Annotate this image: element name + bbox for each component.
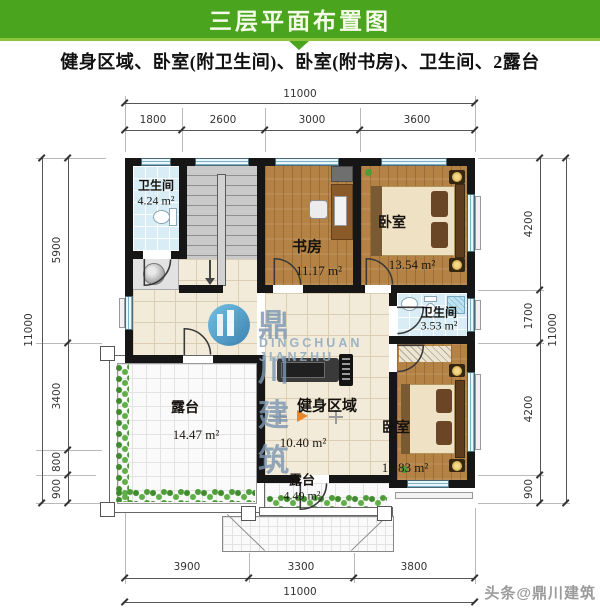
dim-label: 900	[523, 467, 537, 511]
pillow	[436, 421, 452, 445]
treadmill-console-lines	[342, 358, 350, 382]
dim-label-top-total: 11000	[270, 88, 330, 100]
wall	[303, 285, 365, 293]
toilet-icon	[153, 210, 170, 224]
dim-label: 4200	[523, 387, 537, 431]
wall	[391, 285, 475, 293]
dimension-line	[566, 158, 567, 503]
window-sill	[475, 300, 481, 330]
room-label: 卫生间	[138, 177, 174, 194]
window	[195, 158, 249, 166]
title-bar: 三层平面布置图	[0, 0, 600, 41]
window	[381, 158, 447, 166]
terrace-post	[100, 502, 115, 517]
wall	[257, 285, 273, 293]
door-arc	[143, 259, 171, 287]
dim-label: 3900	[157, 561, 217, 573]
room-area-label: 4.24 m²	[138, 194, 175, 209]
pillow	[436, 389, 452, 413]
dim-label-left-total: 11000	[23, 308, 37, 352]
room-label: 卧室	[378, 212, 406, 232]
wall	[449, 480, 475, 488]
room-area-label: 15.83 m²	[382, 460, 429, 476]
dim-label: 3600	[387, 114, 447, 126]
dim-label-bottom-total: 11000	[270, 586, 330, 598]
lamp-icon	[452, 172, 462, 182]
window-sill	[395, 492, 473, 499]
extension-line	[36, 158, 106, 159]
window	[467, 194, 475, 252]
pillow	[431, 222, 448, 248]
wall	[179, 158, 187, 259]
wall	[389, 480, 407, 488]
window-sill	[475, 196, 481, 250]
stair-arrow-head-icon	[205, 278, 215, 285]
dim-label-right-total: 11000	[547, 308, 561, 352]
terrace-1-plants-bottom	[116, 489, 255, 502]
dim-label: 900	[51, 467, 65, 511]
dimension-line	[125, 602, 475, 603]
window-sill	[475, 374, 481, 450]
dim-label: 3400	[51, 374, 65, 418]
bed-headboard	[455, 380, 465, 458]
dimension-line	[540, 158, 541, 503]
chair	[309, 200, 328, 219]
window	[467, 298, 475, 332]
window	[125, 296, 133, 330]
room-label: 卧室	[382, 417, 410, 437]
dim-label: 3800	[384, 561, 444, 573]
terrace-post	[241, 506, 256, 521]
window	[407, 480, 449, 488]
toilet-icon	[424, 296, 437, 302]
stair-rail	[217, 174, 226, 286]
wall	[179, 285, 223, 293]
bed-headboard	[455, 184, 465, 258]
door-arc	[183, 327, 211, 355]
wall	[171, 251, 187, 259]
dim-label: 5900	[51, 228, 65, 272]
terrace-post	[377, 506, 392, 521]
extension-line	[36, 343, 102, 344]
wall	[125, 158, 133, 363]
window	[141, 158, 171, 166]
room-area-label: 13.54 m²	[389, 257, 436, 273]
dimension-line	[42, 158, 43, 503]
exercise-equipment-icon	[279, 410, 281, 424]
door-arc	[397, 344, 425, 372]
page-title: 三层平面布置图	[209, 2, 391, 36]
room-area-label: 11.17 m²	[296, 263, 342, 279]
wall	[389, 293, 397, 306]
room-label: 书房	[292, 236, 322, 257]
printer-cabinet	[331, 166, 353, 182]
monitor-icon	[334, 196, 347, 226]
dim-label: 4200	[523, 202, 537, 246]
dim-label: 3300	[271, 561, 331, 573]
extension-line	[478, 158, 570, 159]
watermark-credit: 头条@鼎川建筑	[446, 582, 596, 603]
room-area-label: 14.47 m²	[173, 427, 220, 443]
terrace-1-plants-left	[116, 364, 129, 502]
wall	[353, 158, 361, 285]
floor-plan-page: 三层平面布置图 健身区域、卧室(附卫生间)、卧室(附书房)、卫生间、2露台 11…	[0, 0, 600, 613]
dim-label: 1800	[123, 114, 183, 126]
extension-line	[36, 503, 106, 504]
wall	[125, 251, 143, 259]
room-label: 健身区域	[297, 395, 357, 416]
extension-line	[478, 343, 544, 344]
extension-line	[36, 450, 102, 451]
dimension-line	[125, 103, 475, 104]
lamp-icon	[452, 366, 462, 376]
lamp-icon	[452, 260, 462, 270]
stair-arrow	[209, 260, 211, 280]
dim-label: 3000	[282, 114, 342, 126]
terrace-post	[100, 346, 115, 361]
wall	[257, 355, 265, 483]
window	[275, 158, 339, 166]
dim-label: 1700	[523, 294, 537, 338]
wall	[389, 336, 475, 344]
extension-line	[478, 290, 544, 291]
toilet-icon	[169, 208, 177, 226]
wall	[257, 158, 265, 293]
room-area-label: 10.40 m²	[280, 435, 327, 451]
extension-line	[475, 508, 476, 584]
dim-label: 2600	[193, 114, 253, 126]
wall	[329, 475, 389, 483]
extension-line	[125, 508, 126, 584]
dimension-line	[68, 158, 69, 503]
window	[467, 372, 475, 452]
dimension-line	[125, 578, 475, 579]
pillow	[431, 191, 448, 217]
building-plan: 卫生间 4.24 m² 书房 11.17 m² 卧室 13.54 m² 卫生间 …	[125, 158, 475, 503]
treadmill-belt	[281, 362, 325, 378]
room-area-label: 4.49 m²	[284, 489, 321, 504]
wall	[125, 355, 183, 363]
extension-line	[475, 96, 476, 152]
room-label: 露台	[289, 470, 315, 489]
plant-icon	[365, 169, 372, 176]
subtitle: 健身区域、卧室(附卫生间)、卧室(附书房)、卫生间、2露台	[0, 48, 600, 74]
lamp-icon	[452, 461, 462, 471]
room-area-label: 3.53 m²	[421, 319, 458, 334]
room-label: 露台	[171, 397, 199, 417]
